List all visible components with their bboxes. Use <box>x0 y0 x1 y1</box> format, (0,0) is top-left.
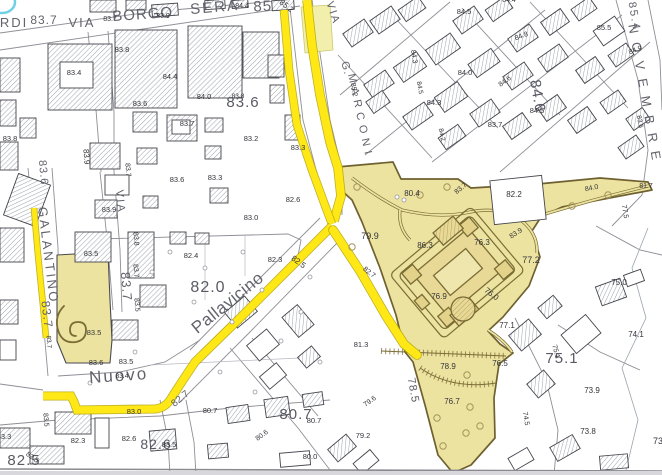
building <box>508 447 534 470</box>
building-hatched <box>170 232 186 244</box>
street-line <box>186 400 196 475</box>
building-hatched <box>205 146 221 159</box>
elevation-label: 83.4 <box>116 373 129 380</box>
map-viewport: RDI83.7VIA83.7BORGO83.9SERA84.48585.2VIA… <box>0 0 662 475</box>
building-hatched <box>270 85 284 103</box>
building <box>95 418 109 448</box>
elevation-label: 75.1 <box>545 350 578 367</box>
elevation-label: 83.0 <box>244 213 259 222</box>
survey-point <box>402 198 406 202</box>
elevation-label: 83.9 <box>156 13 170 20</box>
building-hatched <box>205 118 223 132</box>
survey-point <box>279 339 283 343</box>
street-line <box>596 226 662 255</box>
elevation-label: 79.6 <box>363 395 378 409</box>
elevation-label: 84.5 <box>457 7 472 16</box>
elevation-label: 86.3 <box>417 241 433 250</box>
building-hatched <box>538 295 562 319</box>
elevation-label: 75.0 <box>611 278 627 287</box>
elevation-label: 83.8 <box>3 134 18 143</box>
elevation-label: 80.6 <box>255 429 270 443</box>
elevation-label: 81.3 <box>354 340 369 349</box>
building-hatched <box>0 300 18 324</box>
street-label: 83.7 <box>38 300 55 329</box>
elevation-label: 83.9 <box>102 205 117 214</box>
elevation-label: 73.9 <box>584 386 600 395</box>
building-hatched <box>298 346 321 368</box>
building-hatched <box>195 233 209 244</box>
elevation-label: 80.0 <box>303 452 318 461</box>
elevation-label: 84.0 <box>458 68 473 77</box>
building-hatched <box>599 454 628 470</box>
building-hatched <box>115 30 177 108</box>
elevation-label: 84.4 <box>235 3 249 10</box>
elevation-label: 73 <box>653 436 662 446</box>
building-hatched <box>140 285 166 307</box>
street-label: SERA <box>190 0 240 18</box>
street-label: VIA <box>69 15 96 30</box>
elevation-label: 78.9 <box>440 362 456 371</box>
elevation-label: 76.7 <box>444 397 460 406</box>
building-hatched <box>143 196 158 208</box>
building-hatched <box>468 48 500 77</box>
building <box>259 363 286 389</box>
elevation-label: 83.4 <box>67 68 82 77</box>
elevation-label: 83.8 <box>232 93 245 100</box>
elevation-label: 83.7 <box>123 163 131 177</box>
elevation-label: 85.5 <box>597 23 612 32</box>
survey-point <box>150 270 154 274</box>
building-hatched <box>0 142 18 170</box>
building-hatched <box>398 0 426 22</box>
survey-point <box>308 275 312 279</box>
elevation-label: 80.7 <box>203 406 218 415</box>
elevation-label: 83.3 <box>208 173 223 182</box>
elevation-label: 83.0 <box>127 407 142 416</box>
building-hatched <box>434 82 467 113</box>
map-margin <box>0 471 662 475</box>
survey-point <box>241 250 245 254</box>
building-hatched <box>112 320 138 340</box>
elevation-label: 77.2 <box>522 255 540 265</box>
street-label: 83.6 <box>36 160 50 186</box>
elevation-label: 76.3 <box>474 238 490 247</box>
building-hatched <box>366 91 390 114</box>
elevation-label: 80.4 <box>404 189 420 198</box>
elevation-label: 83.5 <box>119 357 134 366</box>
building-hatched <box>55 412 91 434</box>
street-label: RDI <box>0 15 28 30</box>
elevation-label: 83.7 <box>180 119 195 128</box>
elevation-label: 83.8 <box>115 45 130 54</box>
elevation-label: 83.7 <box>44 335 52 349</box>
building-hatched <box>226 405 250 424</box>
elevation-label: 84.5 <box>415 81 424 95</box>
survey-point <box>253 390 257 394</box>
survey-point <box>133 350 137 354</box>
elevation-label: 82.4 <box>184 251 199 260</box>
building-hatched <box>576 57 605 84</box>
survey-point <box>168 250 172 254</box>
elevation-label: 83.6 <box>133 99 148 108</box>
elevation-label: 84.2 <box>437 128 446 142</box>
street-label: 85 <box>253 0 273 15</box>
elevation-label: 83.7 <box>488 120 503 129</box>
elevation-label: 83.5 <box>84 249 99 258</box>
elevation-label: 84.0 <box>197 92 212 101</box>
building-hatched <box>370 6 400 34</box>
elevation-label: 83.8 <box>131 232 139 246</box>
castle-round-tower <box>451 297 475 321</box>
building <box>0 340 16 360</box>
building-hatched <box>571 0 597 21</box>
street-line <box>0 384 43 390</box>
building-hatched <box>527 370 555 398</box>
building <box>490 175 546 224</box>
building-hatched <box>618 135 644 159</box>
building-hatched <box>503 113 532 140</box>
survey-point <box>318 360 322 364</box>
cloister-parcel-zone <box>57 252 112 363</box>
building-hatched <box>210 188 228 203</box>
building <box>561 315 601 354</box>
elevation-label: 82.2 <box>506 190 522 199</box>
survey-point <box>192 300 196 304</box>
survey-point <box>299 310 303 314</box>
building-hatched <box>538 44 568 72</box>
elevation-label: 74.1 <box>628 330 644 339</box>
building-hatched <box>550 435 581 462</box>
elevation-label: 83.5 <box>87 328 102 337</box>
building-hatched <box>343 19 373 47</box>
street-line <box>622 228 648 470</box>
map-neatline <box>0 469 662 471</box>
building <box>247 329 280 361</box>
elevation-label: 79.9 <box>361 231 379 241</box>
elevation-label: 83.5 <box>41 413 49 427</box>
building-hatched <box>137 148 157 164</box>
elevation-label: 73.8 <box>580 427 596 436</box>
elevation-label: 80.7 <box>307 416 322 425</box>
elevation-label: 83.5 <box>162 440 177 449</box>
elevation-label: 79.2 <box>356 431 371 440</box>
map-canvas[interactable]: RDI83.7VIA83.7BORGO83.9SERA84.48585.2VIA… <box>0 0 662 475</box>
building-hatched <box>133 112 157 132</box>
street-label: 83.7 <box>30 13 57 27</box>
building-hatched <box>541 9 570 36</box>
building-hatched <box>0 58 20 92</box>
elevation-label: 84.3 <box>427 98 442 107</box>
elevation-label: 82.3 <box>71 436 86 445</box>
building-hatched <box>282 305 314 338</box>
elevation-label: 83.2 <box>244 134 259 143</box>
elevation-label: 83.6 <box>89 358 104 367</box>
elevation-label: 82.6 <box>286 195 301 204</box>
elevation-label: 76.5 <box>492 359 508 368</box>
elevation-label: 83.3 <box>291 143 306 152</box>
survey-point <box>230 320 234 324</box>
survey-point <box>260 288 264 292</box>
survey-point <box>395 195 399 199</box>
building-hatched <box>426 33 461 65</box>
elevation-label: 77.1 <box>499 321 515 330</box>
building-hatched <box>90 143 120 169</box>
elevation-label: 83.3 <box>0 432 11 441</box>
elevation-label: 82.6 <box>122 434 137 443</box>
survey-point <box>203 266 207 270</box>
elevation-label: 82.0 <box>190 279 225 296</box>
building-hatched <box>328 434 357 462</box>
elevation-label: 84.4 <box>163 72 178 81</box>
building-hatched <box>600 90 626 114</box>
building-hatched <box>302 392 324 408</box>
elevation-label: 84.4 <box>502 0 516 4</box>
building-hatched <box>0 228 24 262</box>
elevation-label: 84.5 <box>530 106 545 115</box>
elevation-label: 82.3 <box>268 255 283 264</box>
building-hatched <box>20 118 36 138</box>
building-hatched <box>568 107 597 134</box>
elevation-label: 81.7 <box>639 183 653 190</box>
elevation-label: 83.7 <box>131 264 139 278</box>
elevation-label: 74.5 <box>521 411 530 426</box>
building-hatched <box>0 100 16 126</box>
building-hatched <box>268 55 284 77</box>
elevation-label: 83.5 <box>132 298 140 312</box>
elevation-label: 83.6 <box>170 175 185 184</box>
elevation-label: 83.9 <box>81 149 91 166</box>
building-hatched <box>207 443 228 459</box>
building-hatched <box>188 26 242 98</box>
survey-point <box>218 370 222 374</box>
elevation-label: 76.9 <box>431 292 447 301</box>
cyan-symbol <box>0 0 15 13</box>
